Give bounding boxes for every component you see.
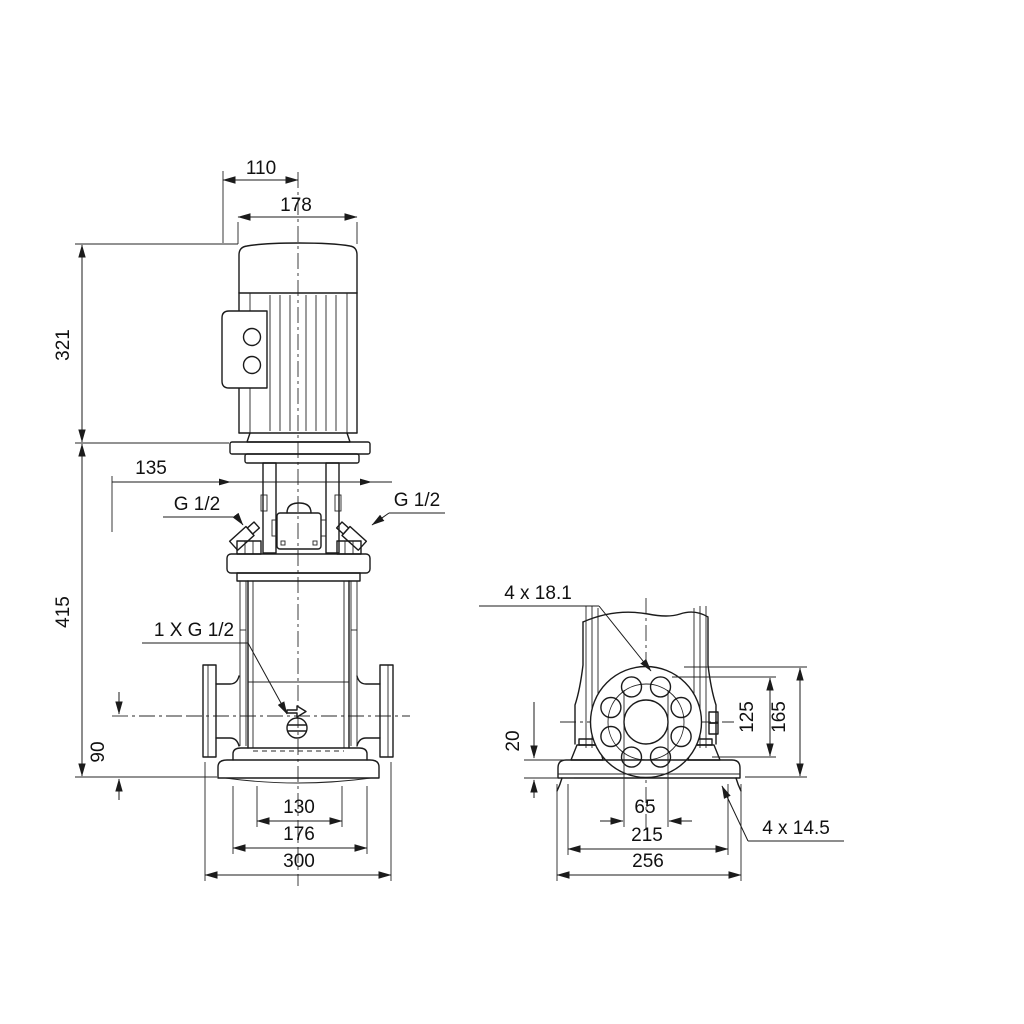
dim-label-20: 20: [503, 730, 524, 751]
motor-flange-plate: [230, 442, 370, 454]
motor-stool: [230, 442, 370, 554]
dim-178: 178: [238, 195, 357, 244]
label-flange-holes: 4 x 18.1: [479, 583, 651, 671]
dim-label-321: 321: [53, 329, 74, 361]
vent-right-label: G 1/2: [394, 490, 440, 511]
staybolt-left: [240, 581, 246, 746]
cable-entry-hole: [244, 357, 261, 374]
hex-nut-right: [337, 541, 361, 554]
dim-label-300: 300: [283, 851, 315, 872]
dim-20: 20: [503, 702, 574, 798]
dim-label-110: 110: [246, 158, 276, 179]
label-vent-right: G 1/2: [372, 490, 445, 525]
coupling-block: [277, 513, 321, 549]
dim-label-176: 176: [283, 824, 315, 845]
flange-holes-label: 4 x 18.1: [504, 583, 572, 604]
cable-entry-hole: [244, 329, 261, 346]
pump-head-plate: [227, 554, 370, 573]
flange-outer-circle: [591, 667, 702, 778]
dim-label-215: 215: [631, 825, 663, 846]
pump-head-step: [237, 573, 360, 581]
base-front: [218, 748, 379, 783]
flange-face: [591, 667, 702, 778]
flange-right: [357, 665, 393, 757]
stool-plate: [245, 454, 359, 463]
dim-321: 321: [53, 244, 238, 443]
dim-label-256: 256: [632, 851, 664, 872]
dim-135: 135: [112, 458, 392, 532]
dim-label-415: 415: [53, 596, 74, 628]
stool-post-right: [326, 463, 339, 553]
side-view: 4 x 18.1 20 125 165 65: [479, 583, 844, 881]
base-holes-label: 4 x 14.5: [762, 818, 830, 839]
label-vent-left: G 1/2: [163, 494, 243, 525]
dim-130: 130: [257, 786, 342, 827]
break-line: [583, 612, 708, 622]
coupling-dome: [287, 503, 311, 513]
dim-label-90: 90: [88, 741, 109, 762]
pump-body: [227, 554, 370, 751]
pump-dimensional-drawing: 110 178 321 415 90: [0, 0, 1024, 1024]
label-base-holes: 4 x 14.5: [722, 786, 844, 841]
staybolt-right: [351, 581, 357, 746]
stool-post-left: [263, 463, 276, 553]
vent-plug-right: [335, 521, 366, 551]
motor-end-bell: [247, 433, 350, 442]
drawing-canvas: 110 178 321 415 90: [0, 0, 1024, 1024]
dim-label-135: 135: [135, 458, 167, 479]
dim-label-130: 130: [283, 797, 315, 818]
dim-90: 90: [88, 692, 186, 800]
flow-direction-arrow-icon: [287, 706, 306, 717]
dim-215: 215: [568, 784, 728, 855]
dim-label-178: 178: [280, 195, 312, 216]
flange-left: [203, 665, 239, 757]
vent-left-label: G 1/2: [174, 494, 220, 515]
terminal-box: [222, 311, 267, 388]
motor: [222, 243, 357, 442]
drain-plug: [287, 706, 307, 738]
dim-label-65: 65: [634, 797, 655, 818]
dim-label-165: 165: [769, 701, 790, 733]
label-drain: 1 X G 1/2: [142, 620, 287, 714]
front-view: 110 178 321 415 90: [53, 158, 445, 886]
motor-fins: [270, 295, 336, 431]
drain-label: 1 X G 1/2: [154, 620, 234, 641]
dim-label-125: 125: [737, 701, 758, 733]
